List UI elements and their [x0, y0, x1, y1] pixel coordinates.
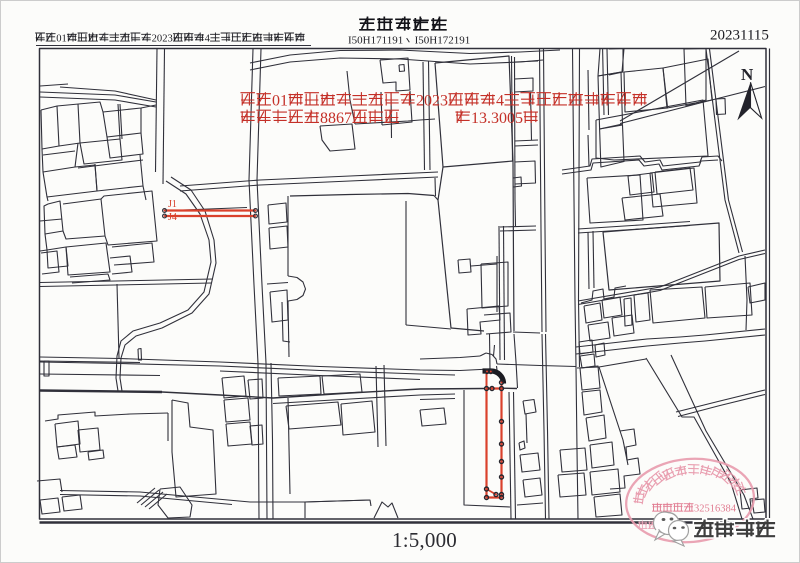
svg-text:20231115: 20231115 [710, 28, 769, 44]
svg-text:J4: J4 [168, 212, 177, 223]
svg-text:13.3005: 13.3005 [471, 110, 523, 127]
svg-text:4: 4 [205, 34, 211, 45]
svg-text:32516384: 32516384 [694, 504, 737, 515]
svg-text:J1: J1 [168, 199, 177, 210]
svg-text:01: 01 [272, 93, 288, 110]
svg-text:8867: 8867 [320, 110, 352, 127]
svg-text:N: N [741, 65, 754, 84]
svg-text:2023: 2023 [152, 34, 173, 45]
svg-text:4: 4 [496, 93, 504, 110]
svg-text:01: 01 [56, 34, 67, 45]
svg-text:2023: 2023 [416, 93, 448, 110]
svg-text:1:5,000: 1:5,000 [392, 528, 457, 552]
svg-text:I50H172191: I50H172191 [415, 35, 471, 47]
svg-text:I50H171191: I50H171191 [348, 35, 403, 47]
